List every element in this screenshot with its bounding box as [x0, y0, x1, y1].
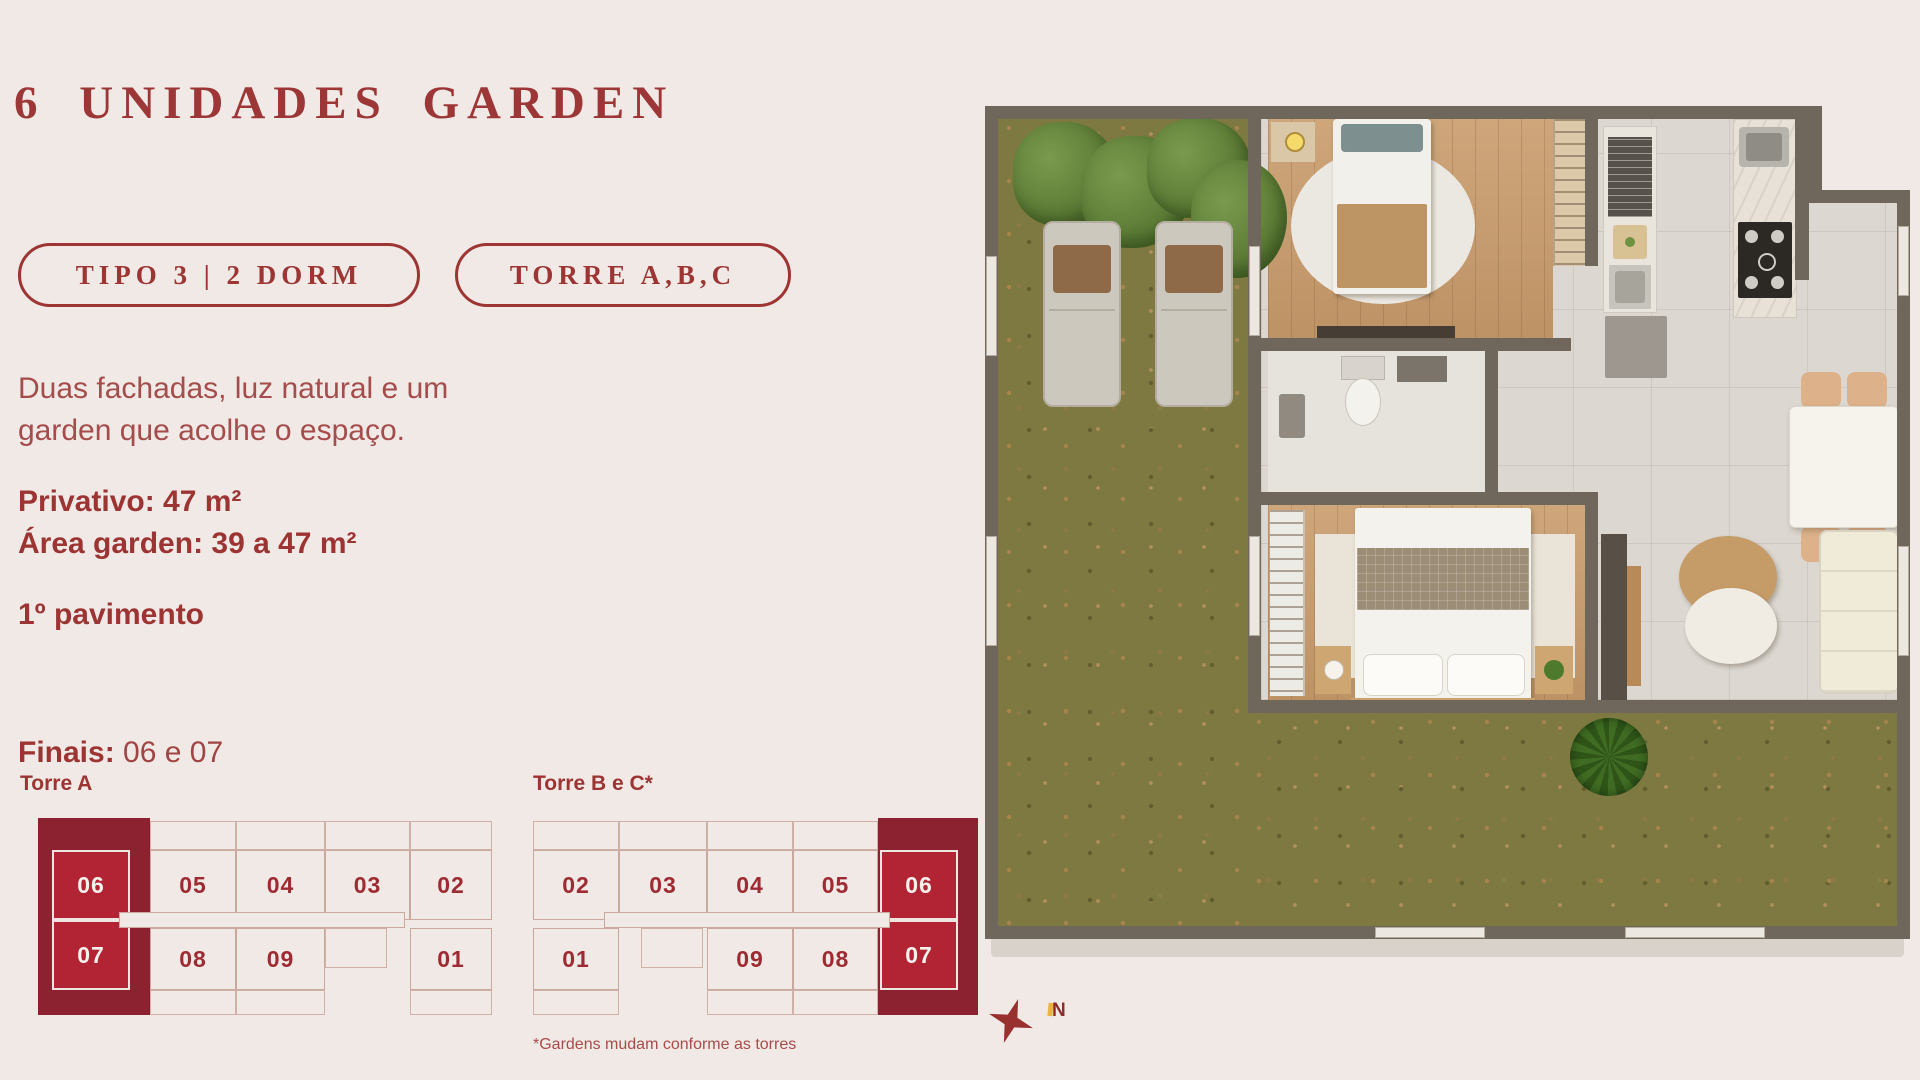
lounger-pillow	[1165, 245, 1223, 293]
keyplan-bc-corridor	[604, 912, 890, 928]
badge-tipo-dorm: TIPO 3 | 2 DORM	[18, 243, 420, 307]
keyplan-bc-balcony	[533, 821, 619, 850]
sun-lounger	[1043, 221, 1121, 407]
bedroom1-pillow	[1341, 124, 1423, 152]
keyplan-a-corridor	[119, 912, 405, 928]
keyplan-a-balcony	[410, 821, 492, 850]
plan-notch	[1822, 106, 1910, 190]
keyplan-bc-unit-02: 02	[533, 850, 619, 920]
dining-chair	[1801, 372, 1841, 408]
bedroom2-nightstand-right	[1535, 646, 1573, 694]
wall-top	[985, 106, 1822, 119]
window-left-1	[986, 256, 997, 356]
keyplan-a-unit-01: 01	[410, 928, 492, 990]
bedroom2-pillow-right	[1447, 654, 1525, 696]
toilet-bowl	[1345, 378, 1381, 426]
wall-bedroom1-bathroom	[1261, 338, 1571, 351]
bedroom2-pillow-left	[1363, 654, 1443, 696]
keyplan-a-stairs	[325, 928, 387, 968]
sofa	[1819, 530, 1899, 694]
bedroom1-dresser	[1317, 326, 1455, 338]
bedroom2-nightstand-left	[1315, 646, 1351, 694]
window-bedroom1	[1249, 246, 1260, 336]
keyplan-a-unit-09: 09	[236, 928, 325, 990]
floorplan-render	[985, 106, 1910, 951]
keyplan-a-unit-03: 03	[325, 850, 410, 920]
bathroom-towel	[1397, 356, 1447, 382]
kitchen-sink-basin	[1615, 271, 1645, 303]
bedroom2-plant	[1544, 660, 1564, 680]
bedroom1-wardrobe	[1553, 119, 1587, 266]
cooktop-burner	[1771, 230, 1784, 243]
window-bedroom2	[1249, 536, 1260, 636]
window-bottom-1	[1375, 927, 1485, 938]
keyplan-bc-unit-04: 04	[707, 850, 793, 920]
brochure-page: { "title": "6 UNIDADES GARDEN", "badges"…	[0, 0, 1920, 1080]
palm-plant	[1570, 718, 1648, 796]
keyplan-bc-balcony	[707, 990, 793, 1015]
keyplan-a-unit-06: 06	[52, 850, 130, 920]
sun-lounger	[1155, 221, 1233, 407]
keyplan-bc-unit-06: 06	[880, 850, 958, 920]
wall-notch-horizontal	[1809, 190, 1910, 203]
cooktop-burner	[1771, 276, 1784, 289]
keyplan-torre-a: 06 05 04 03 02 07 08 09 01	[20, 818, 495, 1018]
plan-base-edge	[991, 939, 1904, 957]
keyplan-bc-balcony	[619, 821, 707, 850]
bedroom1-blanket	[1337, 204, 1427, 288]
kitchen-counter-left	[1603, 126, 1657, 313]
dining-table	[1789, 406, 1899, 528]
keyplan-torre-a-title: Torre A	[20, 772, 92, 796]
keyplan-a-balcony	[325, 821, 410, 850]
dining-chair	[1847, 372, 1887, 408]
bedroom1-lamp	[1285, 132, 1305, 152]
cooktop-burner	[1745, 230, 1758, 243]
keyplan-a-unit-02: 02	[410, 850, 492, 920]
wall-bathroom-bedroom2	[1261, 492, 1585, 505]
keyplan-a-unit-04: 04	[236, 850, 325, 920]
tv-rack-wood	[1627, 566, 1641, 686]
kitchen-counter-right	[1733, 119, 1797, 318]
keyplan-a-balcony	[236, 821, 325, 850]
coffee-table-white	[1685, 588, 1777, 664]
spec-floor: 1º pavimento	[18, 598, 204, 632]
kitchen-sink-right	[1739, 127, 1789, 167]
keyplan-bc-balcony	[707, 821, 793, 850]
lounger-seam	[1049, 309, 1115, 311]
wall-left	[985, 106, 998, 939]
page-title: 6 UNIDADES GARDEN	[14, 76, 734, 130]
keyplan-bc-unit-08: 08	[793, 928, 878, 990]
keyplan-a-unit-07: 07	[52, 920, 130, 990]
bedroom2-bed	[1355, 508, 1531, 704]
keyplan-a-unit-08: 08	[150, 928, 236, 990]
window-right-1	[1898, 226, 1909, 296]
kitchen-sink-right-basin	[1746, 133, 1782, 161]
keyplan-footnote: *Gardens mudam conforme as torres	[533, 1036, 796, 1054]
wall-bathroom-right	[1485, 351, 1498, 492]
badge-torre: TORRE A,B,C	[455, 243, 791, 307]
wall-bedroom2-living	[1585, 492, 1598, 713]
bedroom2-closet	[1270, 510, 1305, 696]
wall-kitchen-right	[1795, 119, 1809, 280]
keyplan-torre-bc: 02 03 04 05 06 01 09 08 07	[533, 818, 1008, 1018]
spec-unit-endings: Finais: 06 e 07	[18, 736, 223, 770]
spec-garden-area: Área garden: 39 a 47 m²	[18, 527, 356, 561]
keyplan-bc-balcony	[793, 990, 878, 1015]
keyplan-a-balcony	[150, 821, 236, 850]
description-line-1: Duas fachadas, luz natural e um	[18, 368, 448, 410]
keyplan-bc-stairs	[641, 928, 703, 968]
finais-value: 06 e 07	[123, 736, 223, 769]
kitchen-sink-left	[1609, 265, 1651, 309]
bathroom-sink	[1279, 394, 1305, 438]
kitchen-dish-rack	[1608, 137, 1652, 217]
keyplan-bc-unit-05: 05	[793, 850, 878, 920]
lounger-pillow	[1053, 245, 1111, 293]
kitchen-avocado	[1625, 237, 1635, 247]
keyplan-a-unit-05: 05	[150, 850, 236, 920]
window-left-2	[986, 536, 997, 646]
bedroom2-lamp	[1324, 660, 1344, 680]
tv-sideboard	[1601, 534, 1627, 702]
bedroom1-bed	[1333, 119, 1431, 294]
kitchen-cooktop	[1738, 222, 1792, 298]
compass-north-label: N	[1052, 1000, 1066, 1022]
description-paragraph: Duas fachadas, luz natural e um garden q…	[18, 368, 448, 452]
keyplan-a-balcony	[236, 990, 325, 1015]
keyplan-a-balcony	[410, 990, 492, 1015]
spec-private-area: Privativo: 47 m²	[18, 485, 241, 519]
lounger-seam	[1161, 309, 1227, 311]
keyplan-bc-unit-01: 01	[533, 928, 619, 990]
wall-wardrobe-kitchen	[1585, 119, 1598, 266]
keyplan-bc-unit-09: 09	[707, 928, 793, 990]
keyplan-bc-unit-03: 03	[619, 850, 707, 920]
badge-torre-label: TORRE A,B,C	[510, 260, 736, 291]
kitchen-cutting-board	[1613, 225, 1647, 259]
window-right-2	[1898, 546, 1909, 656]
badge-tipo-dorm-label: TIPO 3 | 2 DORM	[76, 260, 362, 291]
description-line-2: garden que acolhe o espaço.	[18, 410, 448, 452]
cooktop-burner	[1745, 276, 1758, 289]
finais-label: Finais:	[18, 736, 115, 769]
cooktop-knob	[1758, 253, 1776, 271]
wall-interior-bottom	[1261, 700, 1897, 713]
kitchen-appliance	[1605, 316, 1667, 378]
wall-notch-vertical	[1809, 106, 1822, 203]
keyplan-torre-bc-title: Torre B e C*	[533, 772, 653, 796]
keyplan-a-balcony	[150, 990, 236, 1015]
bedroom1-nightstand	[1271, 122, 1315, 162]
keyplan-bc-balcony	[793, 821, 878, 850]
toilet-tank	[1341, 356, 1385, 380]
bedroom2-blanket	[1357, 548, 1529, 610]
keyplan-bc-balcony	[533, 990, 619, 1015]
patio-door	[1625, 927, 1765, 938]
keyplan-bc-unit-07: 07	[880, 920, 958, 990]
